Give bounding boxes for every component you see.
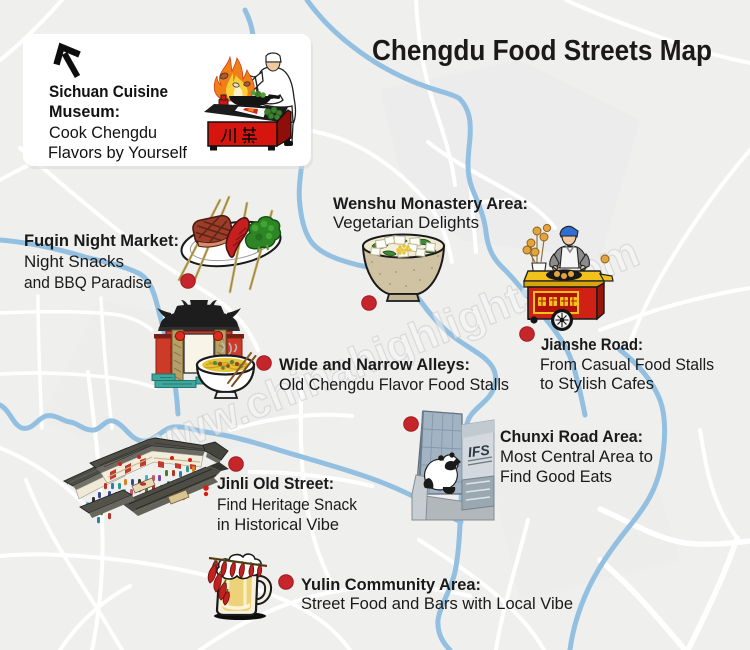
svg-text:Fuqin Night Market:: Fuqin Night Market: bbox=[24, 231, 179, 250]
svg-text:Cook Chengdu: Cook Chengdu bbox=[49, 124, 157, 142]
svg-text:Flavors by Yourself: Flavors by Yourself bbox=[48, 144, 187, 162]
svg-text:Find Heritage Snack: Find Heritage Snack bbox=[217, 495, 357, 514]
svg-text:From Casual Food Stalls: From Casual Food Stalls bbox=[540, 355, 714, 374]
svg-text:Museum:: Museum: bbox=[49, 103, 120, 121]
svg-text:Jinli Old Street:: Jinli Old Street: bbox=[217, 474, 334, 493]
svg-text:Old Chengdu Flavor Food Stalls: Old Chengdu Flavor Food Stalls bbox=[279, 375, 509, 394]
svg-text:Wenshu Monastery Area:: Wenshu Monastery Area: bbox=[333, 194, 528, 213]
svg-text:Night Snacks: Night Snacks bbox=[24, 252, 124, 271]
svg-text:to Stylish Cafes: to Stylish Cafes bbox=[540, 374, 654, 393]
svg-text:Jianshe Road:: Jianshe Road: bbox=[541, 335, 643, 354]
svg-text:Yulin Community Area:: Yulin Community Area: bbox=[301, 575, 481, 594]
svg-text:Vegetarian Delights: Vegetarian Delights bbox=[333, 213, 479, 232]
svg-text:Street Food and Bars with Loca: Street Food and Bars with Local Vibe bbox=[301, 594, 573, 613]
svg-text:Sichuan Cuisine: Sichuan Cuisine bbox=[49, 83, 168, 101]
svg-text:in Historical Vibe: in Historical Vibe bbox=[217, 515, 339, 534]
svg-text:and BBQ Paradise: and BBQ Paradise bbox=[24, 273, 152, 292]
svg-text:Find Good Eats: Find Good Eats bbox=[500, 467, 612, 486]
svg-text:Chengdu Food Streets Map: Chengdu Food Streets Map bbox=[372, 35, 712, 67]
svg-text:Wide and Narrow Alleys:: Wide and Narrow Alleys: bbox=[279, 355, 470, 374]
svg-text:Most Central Area to: Most Central Area to bbox=[500, 447, 653, 466]
svg-text:Chunxi Road Area:: Chunxi Road Area: bbox=[500, 427, 643, 446]
